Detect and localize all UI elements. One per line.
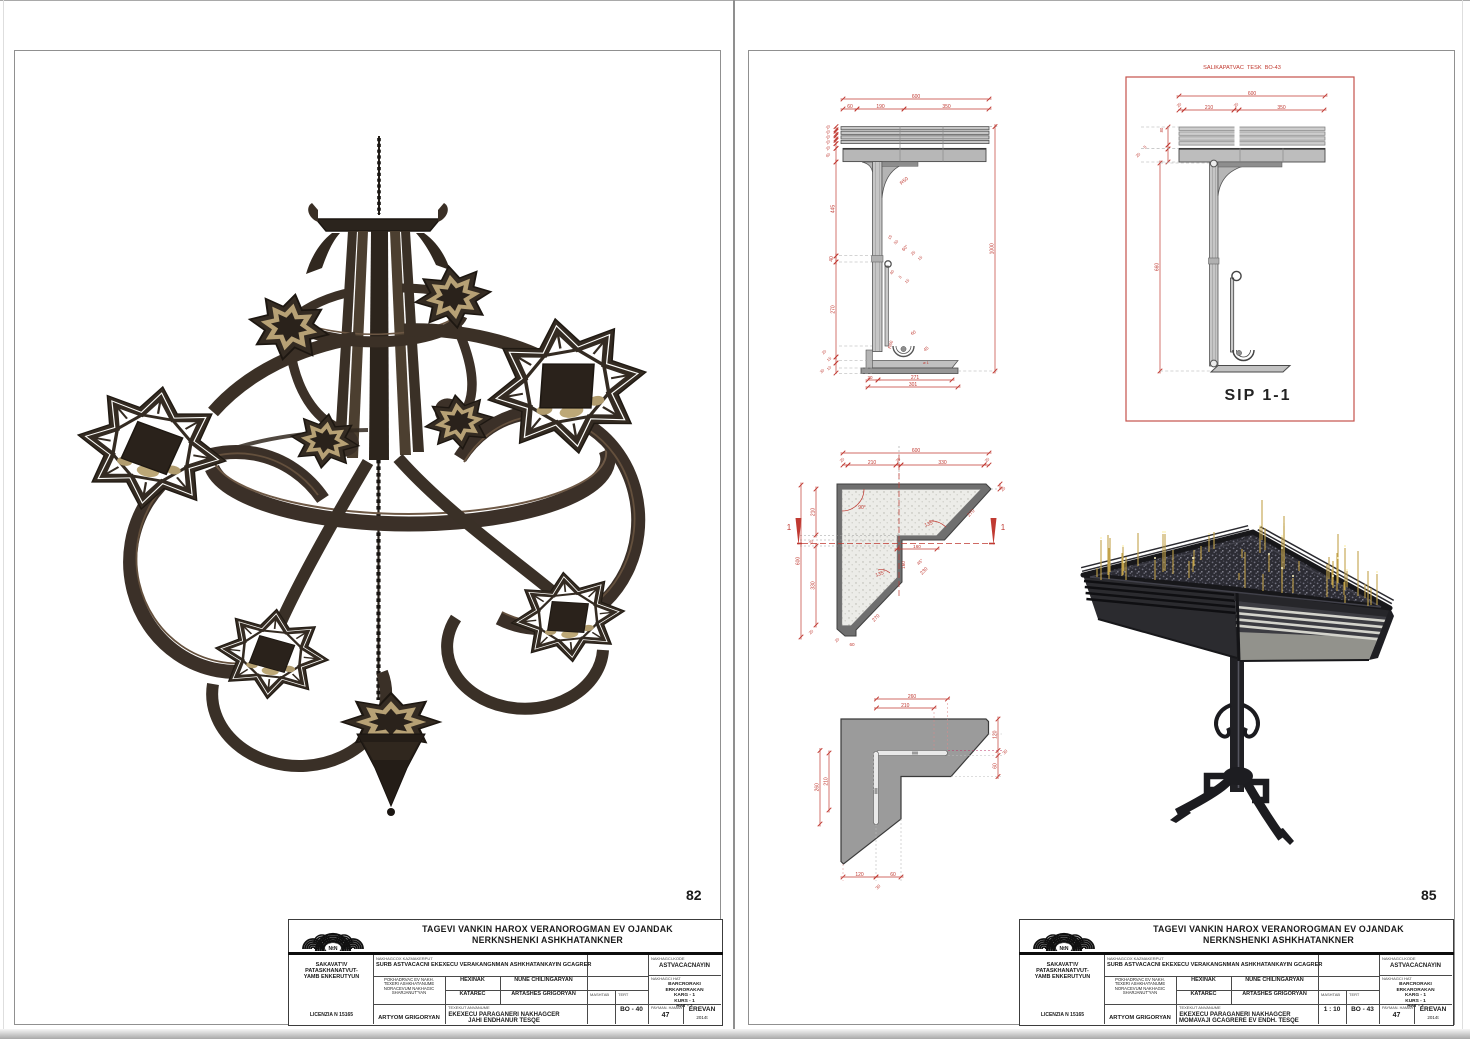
svg-text:40: 40	[829, 256, 835, 262]
svg-text:270: 270	[871, 613, 881, 623]
svg-text:ø 1: ø 1	[923, 360, 930, 365]
svg-text:600: 600	[912, 448, 921, 454]
svg-text:230: 230	[919, 566, 929, 576]
svg-text:20: 20	[984, 456, 991, 463]
svg-text:210: 210	[1205, 105, 1214, 111]
svg-text:25: 25	[910, 249, 917, 256]
svg-text:15: 15	[917, 254, 924, 261]
svg-text:210: 210	[868, 460, 877, 466]
svg-text:40: 40	[888, 268, 895, 275]
svg-text:SALIKAPATVAC TESK BO-43: SALIKAPATVAC TESK BO-43	[1203, 65, 1281, 71]
svg-text:260: 260	[908, 694, 917, 700]
svg-text:20: 20	[834, 636, 841, 643]
svg-text:330: 330	[811, 581, 817, 590]
svg-text:120: 120	[993, 730, 999, 739]
svg-text:50: 50	[893, 238, 900, 245]
svg-text:160: 160	[913, 544, 921, 549]
svg-text:600: 600	[796, 557, 802, 566]
svg-text:20: 20	[895, 456, 902, 463]
svg-text:5: 5	[897, 274, 903, 280]
svg-text:660: 660	[1155, 263, 1161, 272]
svg-text:20: 20	[1233, 101, 1240, 108]
svg-text:210: 210	[811, 508, 817, 517]
svg-text:60: 60	[910, 329, 917, 336]
svg-text:15: 15	[886, 233, 893, 240]
svg-text:1000: 1000	[990, 243, 996, 254]
svg-text:NtN: NtN	[329, 946, 338, 952]
svg-text:60: 60	[849, 642, 855, 647]
svg-text:350: 350	[942, 104, 951, 110]
svg-text:20: 20	[1000, 485, 1007, 492]
svg-text:SIP 1-1: SIP 1-1	[1224, 387, 1291, 404]
svg-text:301: 301	[909, 382, 918, 388]
svg-text:20: 20	[808, 538, 815, 545]
svg-text:271: 271	[911, 375, 920, 381]
svg-text:20: 20	[1135, 151, 1142, 158]
svg-text:600: 600	[912, 94, 921, 100]
svg-text:60: 60	[890, 872, 896, 878]
svg-text:210: 210	[824, 777, 830, 786]
svg-text:330: 330	[938, 460, 947, 466]
svg-text:60°: 60°	[901, 244, 909, 252]
svg-text:260: 260	[815, 783, 821, 792]
svg-text:210: 210	[901, 703, 910, 709]
svg-text:90°: 90°	[858, 505, 866, 511]
svg-text:15: 15	[826, 355, 833, 362]
svg-text:190: 190	[876, 104, 885, 110]
svg-text:20: 20	[808, 628, 815, 635]
svg-text:160: 160	[901, 561, 906, 569]
svg-text:NtN: NtN	[1060, 946, 1069, 952]
svg-text:20: 20	[839, 456, 846, 463]
svg-text:600: 600	[1248, 91, 1257, 97]
svg-text:350: 350	[1277, 105, 1286, 111]
svg-text:20: 20	[821, 348, 828, 355]
svg-text:60: 60	[825, 151, 832, 158]
svg-text:1: 1	[787, 523, 792, 532]
svg-text:20: 20	[1176, 101, 1183, 108]
svg-text:30: 30	[874, 883, 881, 890]
svg-text:15: 15	[904, 277, 911, 284]
svg-text:45°: 45°	[916, 558, 924, 566]
svg-text:10: 10	[826, 364, 833, 371]
svg-text:30: 30	[1001, 748, 1008, 755]
svg-text:60: 60	[993, 763, 999, 769]
svg-text:80: 80	[1159, 127, 1164, 132]
svg-text:R50: R50	[899, 176, 910, 187]
svg-text:1: 1	[1001, 523, 1006, 532]
svg-text:445: 445	[831, 205, 837, 214]
svg-text:270: 270	[831, 305, 837, 314]
svg-text:120: 120	[855, 872, 864, 878]
svg-text:45: 45	[923, 345, 930, 352]
svg-text:20: 20	[867, 375, 873, 380]
svg-text:60: 60	[847, 104, 853, 110]
svg-text:20: 20	[825, 144, 832, 151]
